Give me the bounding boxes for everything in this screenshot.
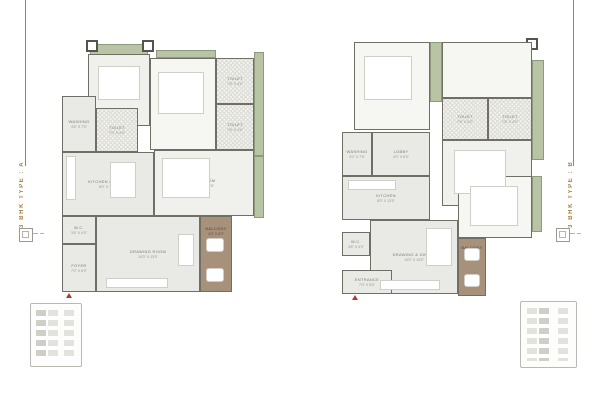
key-plan-units: [558, 308, 568, 361]
room-dim: 14'0" X 13'0": [130, 255, 166, 259]
room-a-foyer: FOYER7'0" X 6'0": [62, 244, 96, 292]
brochure-page: { "page": { "background": "#ffffff" }, "…: [0, 0, 600, 400]
bed: [364, 56, 412, 100]
location-marker-inner: [559, 231, 566, 238]
room-b-toilet-2: TOILET7'6" X 4'0": [488, 98, 532, 140]
key-plan-units: [527, 308, 537, 361]
kitchen-counter: [348, 180, 396, 190]
room-b-toilet-1: TOILET7'6" X 4'0": [442, 98, 488, 140]
floor-plan-a: BEDROOM12'0" X 11'6" BEDROOM11'6" X 13'0…: [60, 38, 266, 296]
room-b-open-area: [442, 42, 532, 98]
room-name: WASHING: [68, 119, 89, 124]
accent-line-left: [25, 0, 26, 166]
wall-pillar: [142, 40, 154, 52]
room-dim: 7'6" X 4'0": [502, 120, 518, 124]
terrace-strip: [532, 176, 542, 232]
room-name: TOILET: [109, 125, 125, 130]
sofa: [380, 280, 440, 290]
room-a-toilet-3: TOILET7'0" X 4'0": [96, 108, 138, 152]
room-a-toilet-2: TOILET7'6" X 4'0": [216, 104, 254, 150]
terrace-strip: [532, 60, 544, 160]
room-b-washing: WASHING3'0" X 7'6": [342, 132, 372, 176]
room-dim: 7'0" X 6'0": [71, 269, 87, 273]
balcony-seat: [464, 274, 480, 287]
room-dim: 3'6" X 4'0": [348, 245, 364, 249]
room-a-toilet-1: TOILET7'6" X 4'0": [216, 58, 254, 104]
location-dash: [570, 233, 575, 234]
room-dim: 4'0" X 6'0": [393, 155, 409, 159]
location-marker-icon: [556, 228, 570, 242]
room-name: W.C.: [348, 239, 364, 244]
location-dash: [33, 233, 38, 234]
room-name: ENTRANCE: [355, 277, 379, 282]
plan-b-side-label: 3 BHK TYPE : B: [568, 172, 574, 228]
sofa: [106, 278, 168, 288]
floor-plan-b: BEDROOM11'0" X 12'0" TOILET7'6" X 4'0" T…: [340, 36, 546, 298]
room-b-balcony: BALCONY4'0" X 8'0": [458, 238, 486, 296]
sofa: [178, 234, 194, 266]
terrace-strip: [254, 52, 264, 156]
room-a-washing: WASHING3'6" X 7'0": [62, 96, 96, 152]
room-name: TOILET: [457, 114, 473, 119]
room-dim: 7'6" X 4'0": [227, 82, 243, 86]
kitchen-counter: [66, 156, 76, 200]
room-name: LOBBY: [393, 149, 409, 154]
entrance-arrow: [66, 293, 72, 298]
room-dim: 7'0" X 5'0": [355, 283, 379, 287]
plan-a-side-label: 3 BHK TYPE : A: [19, 172, 25, 228]
room-name: WASHING: [346, 149, 367, 154]
bed: [470, 186, 518, 226]
key-plan-right: [520, 301, 577, 368]
dining-table: [110, 162, 136, 198]
room-name: FOYER: [71, 263, 87, 268]
balcony-seat: [464, 248, 480, 261]
terrace-strip: [430, 42, 442, 102]
room-dim: 7'6" X 4'0": [227, 128, 243, 132]
balcony-seat: [206, 268, 224, 282]
room-dim: 4'0" X 8'0": [205, 232, 226, 236]
location-dash: [577, 233, 581, 234]
terrace-strip: [254, 156, 264, 218]
room-name: DRAWING ROOM: [130, 249, 166, 254]
room-dim: 3'6" X 4'0": [71, 231, 87, 235]
room-dim: 7'6" X 4'0": [457, 120, 473, 124]
key-plan-units: [36, 310, 46, 360]
room-b-lobby: LOBBY4'0" X 6'0": [372, 132, 430, 176]
room-dim: 3'0" X 7'6": [346, 155, 367, 159]
key-plan-units: [539, 308, 549, 361]
location-marker-inner: [22, 231, 29, 238]
balcony-seat: [206, 238, 224, 252]
room-dim: 8'0" X 12'0": [376, 199, 396, 203]
wall-pillar: [86, 40, 98, 52]
key-plan-units: [48, 310, 58, 360]
accent-line-right: [573, 0, 574, 166]
room-name: TOILET: [227, 122, 243, 127]
location-marker-icon: [19, 228, 33, 242]
dining-table: [426, 228, 452, 266]
key-plan-left: [30, 303, 82, 367]
bed: [158, 72, 204, 114]
bed: [162, 158, 210, 198]
room-dim: 7'0" X 4'0": [109, 131, 125, 135]
room-dim: 3'6" X 7'0": [68, 125, 89, 129]
location-dash: [40, 233, 44, 234]
entrance-arrow: [352, 295, 358, 300]
room-name: KITCHEN: [376, 193, 396, 198]
room-b-wc: W.C.3'6" X 4'0": [342, 232, 370, 256]
key-plan-units: [64, 310, 74, 360]
terrace-strip: [156, 50, 216, 58]
room-name: TOILET: [227, 76, 243, 81]
room-a-wc: W.C.3'6" X 4'0": [62, 216, 96, 244]
room-name: W.C.: [71, 225, 87, 230]
room-name: BALCONY: [205, 226, 226, 231]
room-name: TOILET: [502, 114, 518, 119]
bed: [98, 66, 140, 100]
